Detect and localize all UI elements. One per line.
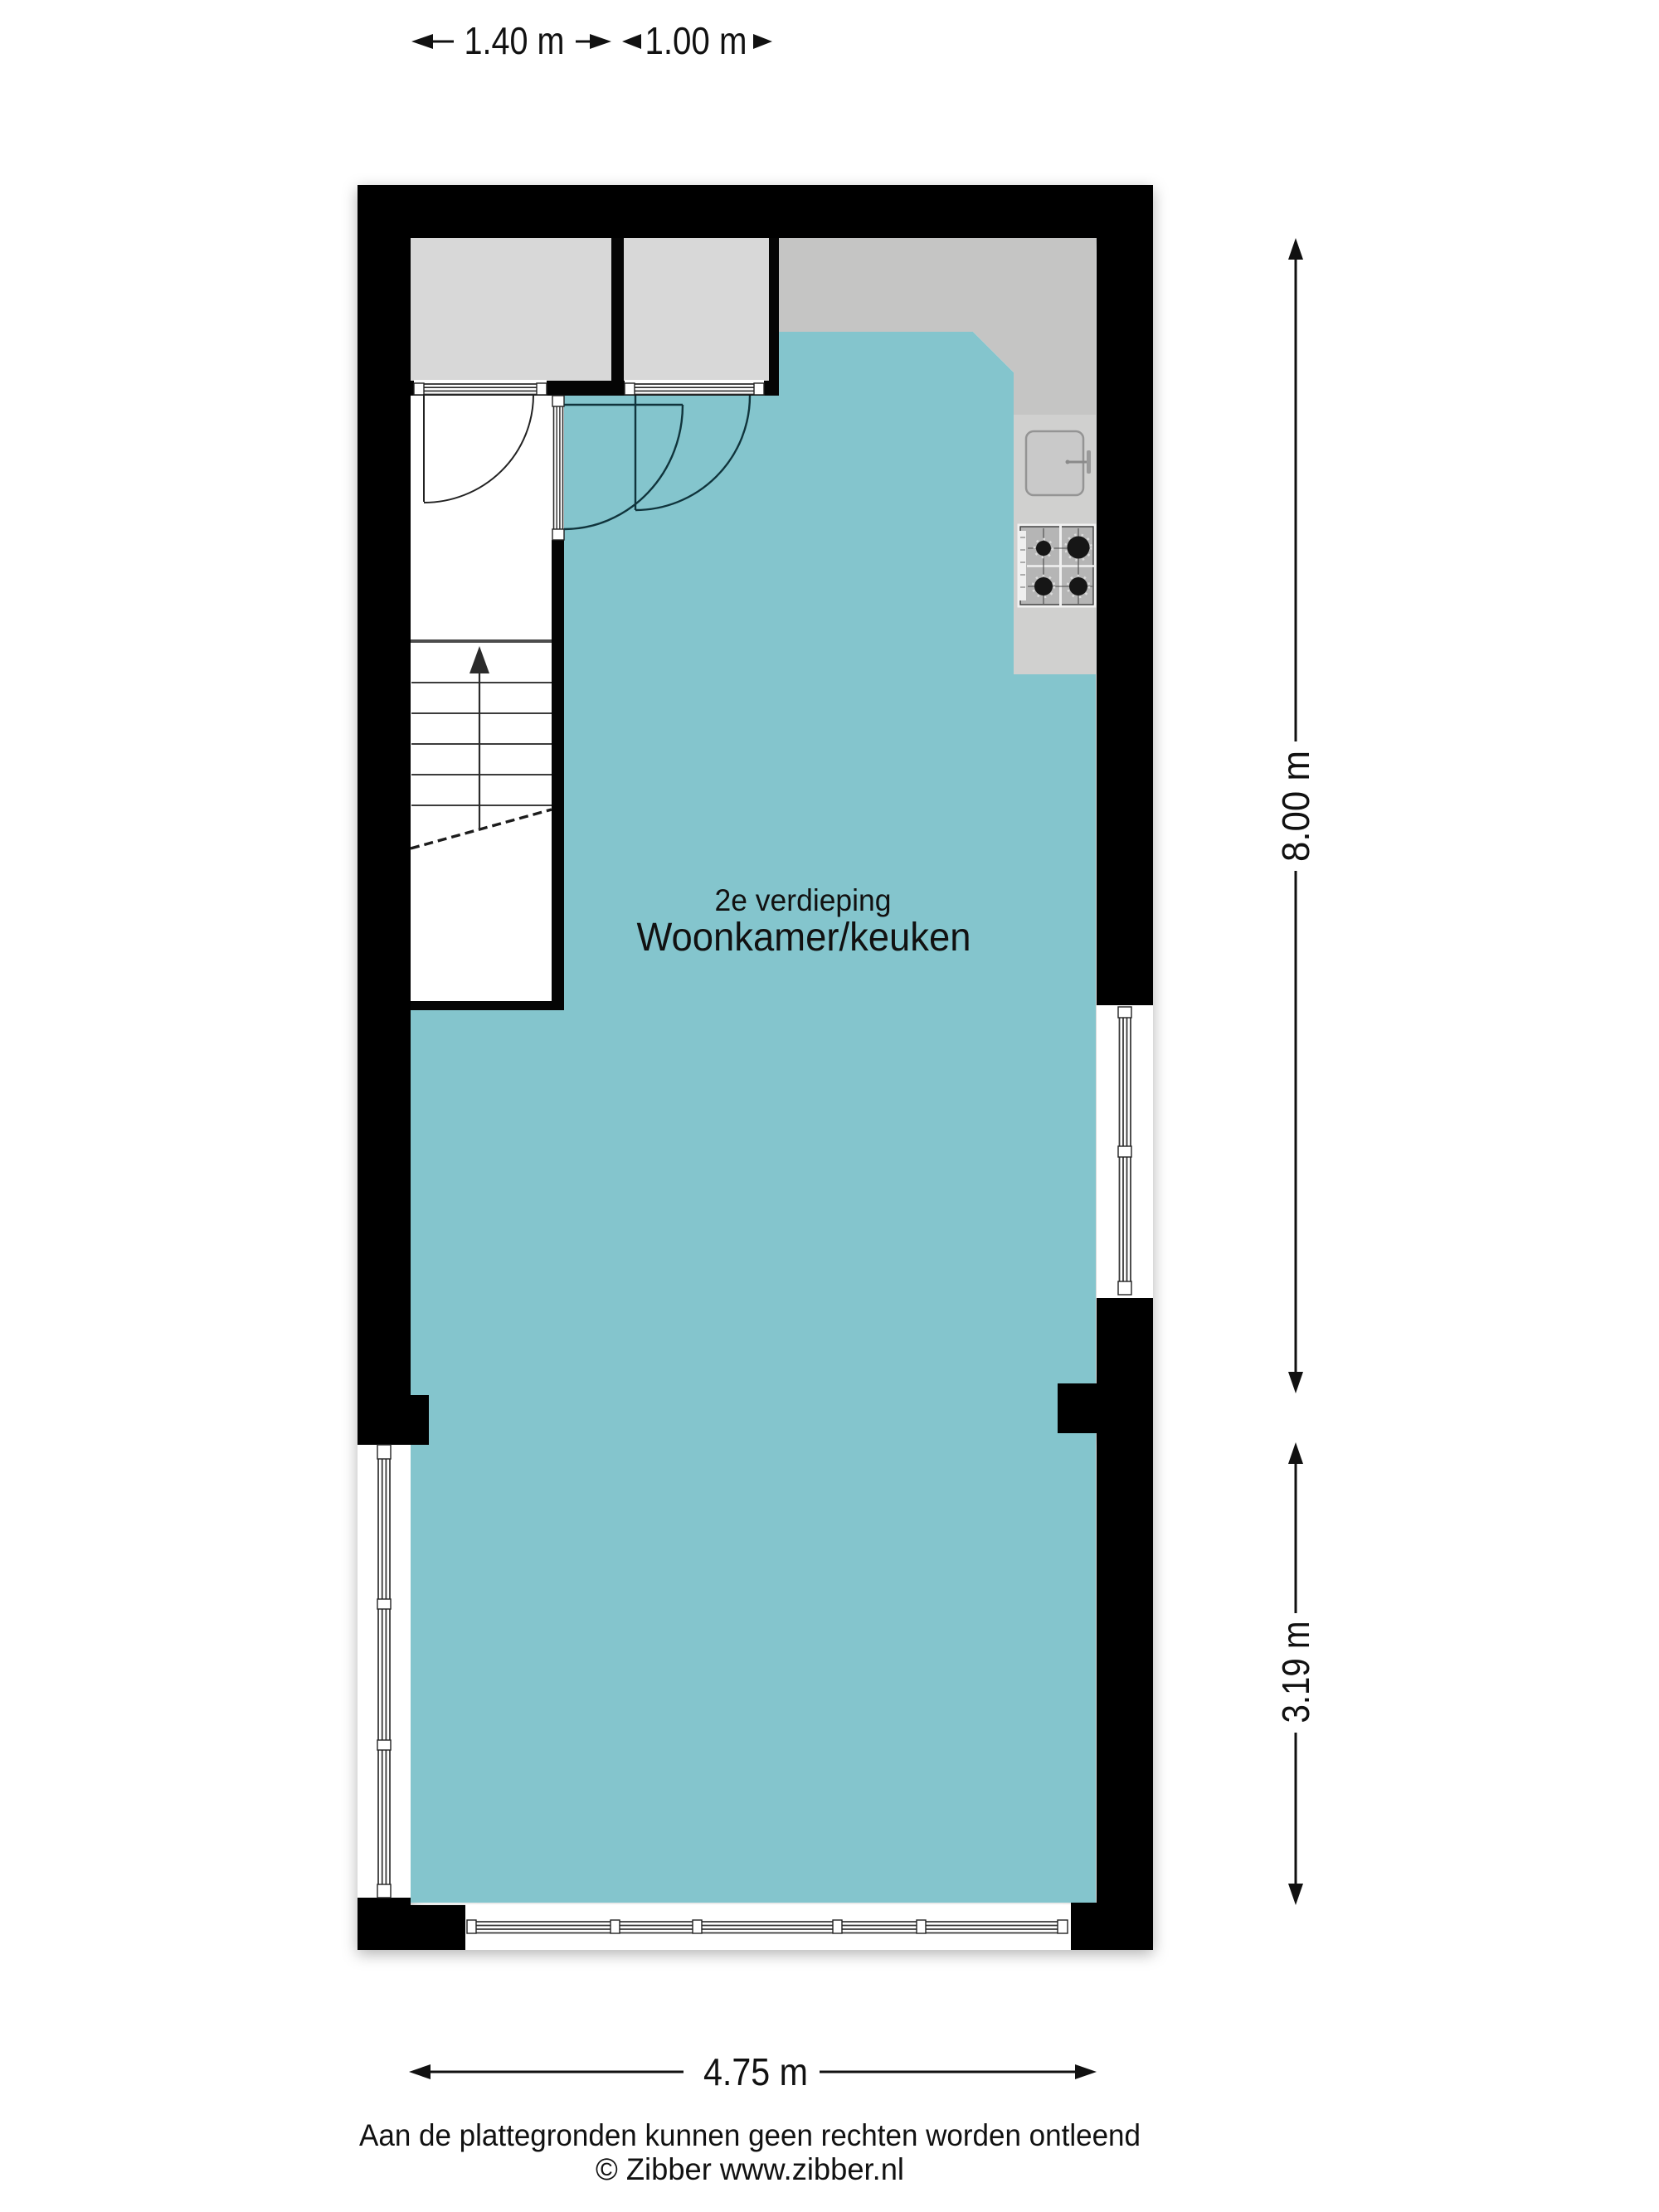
svg-text:1.40 m: 1.40 m bbox=[465, 19, 565, 62]
svg-text:8.00 m: 8.00 m bbox=[1274, 751, 1317, 862]
svg-text:Aan de plattegronden kunnen ge: Aan de plattegronden kunnen geen rechten… bbox=[359, 2118, 1141, 2152]
svg-text:© Zibber www.zibber.nl: © Zibber www.zibber.nl bbox=[596, 2152, 904, 2186]
svg-text:1.00 m: 1.00 m bbox=[645, 19, 747, 62]
svg-text:3.19 m: 3.19 m bbox=[1274, 1621, 1317, 1723]
svg-text:Woonkamer/keuken: Woonkamer/keuken bbox=[637, 916, 971, 960]
svg-text:4.75 m: 4.75 m bbox=[703, 2050, 808, 2093]
svg-text:2e verdieping: 2e verdieping bbox=[715, 883, 892, 917]
